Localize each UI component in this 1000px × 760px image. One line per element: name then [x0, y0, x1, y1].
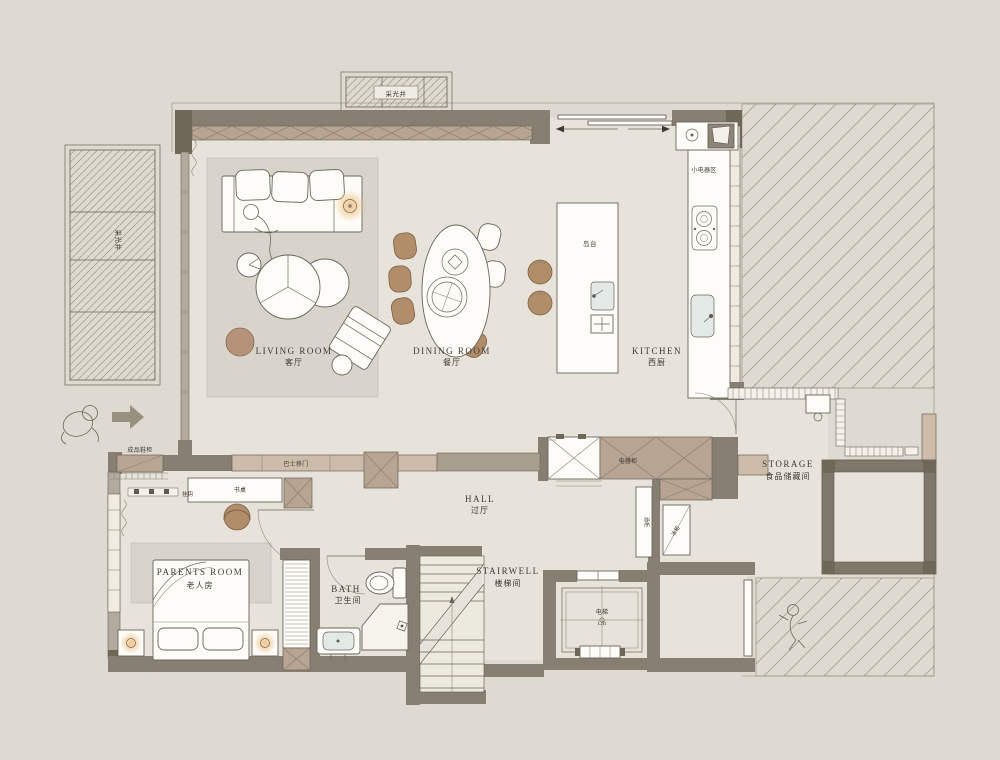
lightwell-top: 采光井	[341, 72, 452, 112]
pillow	[203, 628, 243, 650]
floor-east-room	[655, 575, 747, 660]
svg-text:客厅: 客厅	[285, 357, 303, 367]
dining-table	[422, 225, 490, 357]
pantry-basin	[806, 395, 830, 413]
bath-label-en: BATH	[331, 584, 361, 594]
svg-text:STAIRWELL: STAIRWELL	[476, 566, 539, 576]
parents-label-zh: 老人房	[187, 580, 214, 590]
appliance-cabinet: 电器柜	[600, 437, 712, 479]
void-shaft	[822, 460, 936, 574]
lightwell-top-label: 采光井	[386, 89, 407, 98]
terrace-hatch-lower	[756, 578, 934, 676]
hooks-label: 挂钩	[182, 490, 194, 498]
lightwell-left-label: 采光井	[114, 230, 123, 251]
svg-text:KITCHEN: KITCHEN	[632, 346, 682, 356]
desk-label: 书桌	[234, 486, 247, 494]
pouf	[226, 328, 254, 356]
elevator-sill	[575, 646, 625, 658]
svg-text:DINING ROOM: DINING ROOM	[413, 346, 491, 356]
barn-door-label: 巴士移门	[283, 460, 308, 468]
terrace-hatch-upper	[742, 104, 934, 388]
svg-text:过厅: 过厅	[471, 505, 489, 515]
svg-text:HALL: HALL	[465, 494, 495, 504]
shoe-cabinet-label: 成品鞋柜	[127, 446, 152, 454]
elevator: 电梯 Lift	[543, 570, 660, 670]
stairs	[420, 556, 484, 692]
tall-cabinet: 酒柜	[636, 487, 652, 557]
lounge-side-table	[332, 355, 352, 375]
parents-label-en: PARENTS ROOM	[157, 567, 243, 577]
storage-label-en: STORAGE	[762, 459, 814, 469]
elevator-label-zh: 电梯	[596, 608, 609, 616]
tall-cabinet-label: 酒柜	[643, 517, 650, 527]
svg-text:楼梯间: 楼梯间	[495, 578, 522, 588]
corner-counter	[676, 122, 738, 150]
lightwell-left: 采光井	[65, 145, 160, 385]
svg-text:LIVING ROOM: LIVING ROOM	[256, 346, 333, 356]
wardrobe	[283, 560, 310, 670]
bar-stool	[528, 260, 552, 284]
pillow	[158, 628, 198, 650]
bath-label-zh: 卫生间	[335, 595, 362, 605]
sink-cabinet	[548, 434, 600, 479]
dining-chair	[388, 265, 412, 292]
sofa	[222, 169, 366, 232]
lower-cabinet	[660, 479, 712, 500]
bar-stool	[528, 291, 552, 315]
elevator-label-en: Lift	[598, 620, 607, 627]
desk-chair	[224, 504, 250, 530]
storage-label-zh: 食品储藏间	[766, 471, 811, 481]
svg-text:餐厅: 餐厅	[443, 358, 461, 367]
floor-plan-canvas: 采光井 采光井	[0, 0, 1000, 760]
nightstand-lamp	[252, 630, 278, 656]
kitchen-island: 岛台	[557, 203, 618, 373]
kitchen-counter: 小电器区	[688, 150, 730, 398]
wall-column-x	[284, 478, 312, 508]
floor-plan-svg: 采光井 采光井	[0, 0, 1000, 760]
appliance-cabinet-label: 电器柜	[619, 457, 638, 465]
freezer: 冰柜	[663, 505, 690, 555]
curtain-box-band	[192, 126, 532, 140]
island-label: 岛台	[583, 239, 597, 248]
svg-text:西厨: 西厨	[648, 358, 666, 367]
nightstand-lamp	[118, 630, 144, 656]
small-appliance-label: 小电器区	[691, 166, 716, 174]
wall-column-x2	[364, 452, 398, 488]
